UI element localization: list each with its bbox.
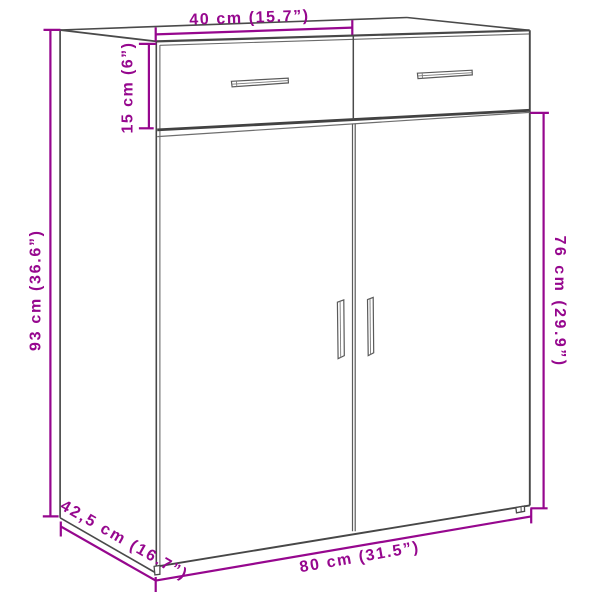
svg-text:15 cm (6”): 15 cm (6”)	[120, 42, 137, 134]
svg-text:42,5 cm (16.7”): 42,5 cm (16.7”)	[57, 497, 191, 584]
svg-text:80 cm (31.5”): 80 cm (31.5”)	[298, 539, 421, 576]
svg-text:93 cm (36.6”): 93 cm (36.6”)	[28, 229, 45, 351]
svg-text:40 cm (15.7”): 40 cm (15.7”)	[189, 8, 310, 29]
svg-text:76 cm (29.9”): 76 cm (29.9”)	[551, 236, 568, 368]
